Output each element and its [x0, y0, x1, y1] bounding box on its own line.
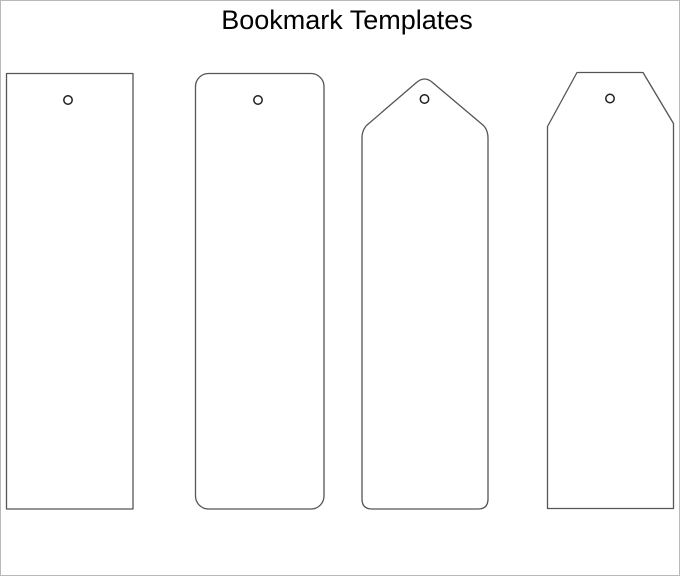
template-chamfered-top-outline [548, 73, 674, 509]
punch-hole [606, 94, 614, 102]
template-rounded-rectangle-outline [196, 74, 325, 510]
punch-hole [254, 96, 262, 104]
template-chamfered-top[interactable] [548, 73, 674, 509]
template-pointed-top[interactable] [362, 79, 488, 509]
punch-hole [64, 96, 72, 104]
templates-canvas [0, 0, 680, 578]
template-pointed-top-outline [362, 79, 488, 509]
template-rectangle-outline [7, 74, 134, 510]
template-rounded-rectangle[interactable] [196, 74, 325, 510]
template-rectangle[interactable] [7, 74, 134, 510]
punch-hole [420, 95, 428, 103]
bookmark-templates-page: Bookmark Templates [0, 0, 680, 578]
